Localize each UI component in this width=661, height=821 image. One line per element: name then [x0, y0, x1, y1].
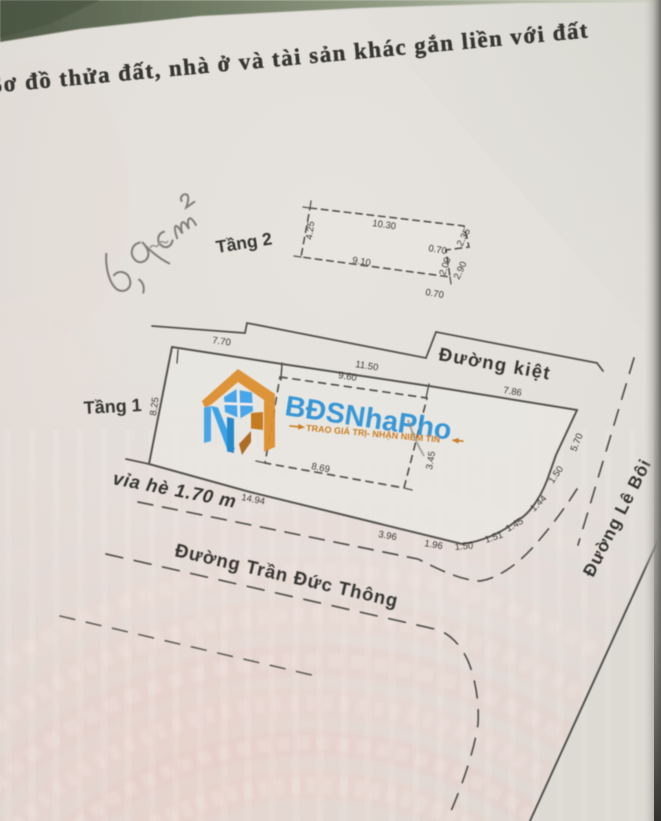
svg-text:Tầng 1: Tầng 1 — [83, 395, 142, 418]
svg-text:1.50: 1.50 — [454, 540, 473, 553]
svg-text:4.25: 4.25 — [304, 221, 317, 241]
